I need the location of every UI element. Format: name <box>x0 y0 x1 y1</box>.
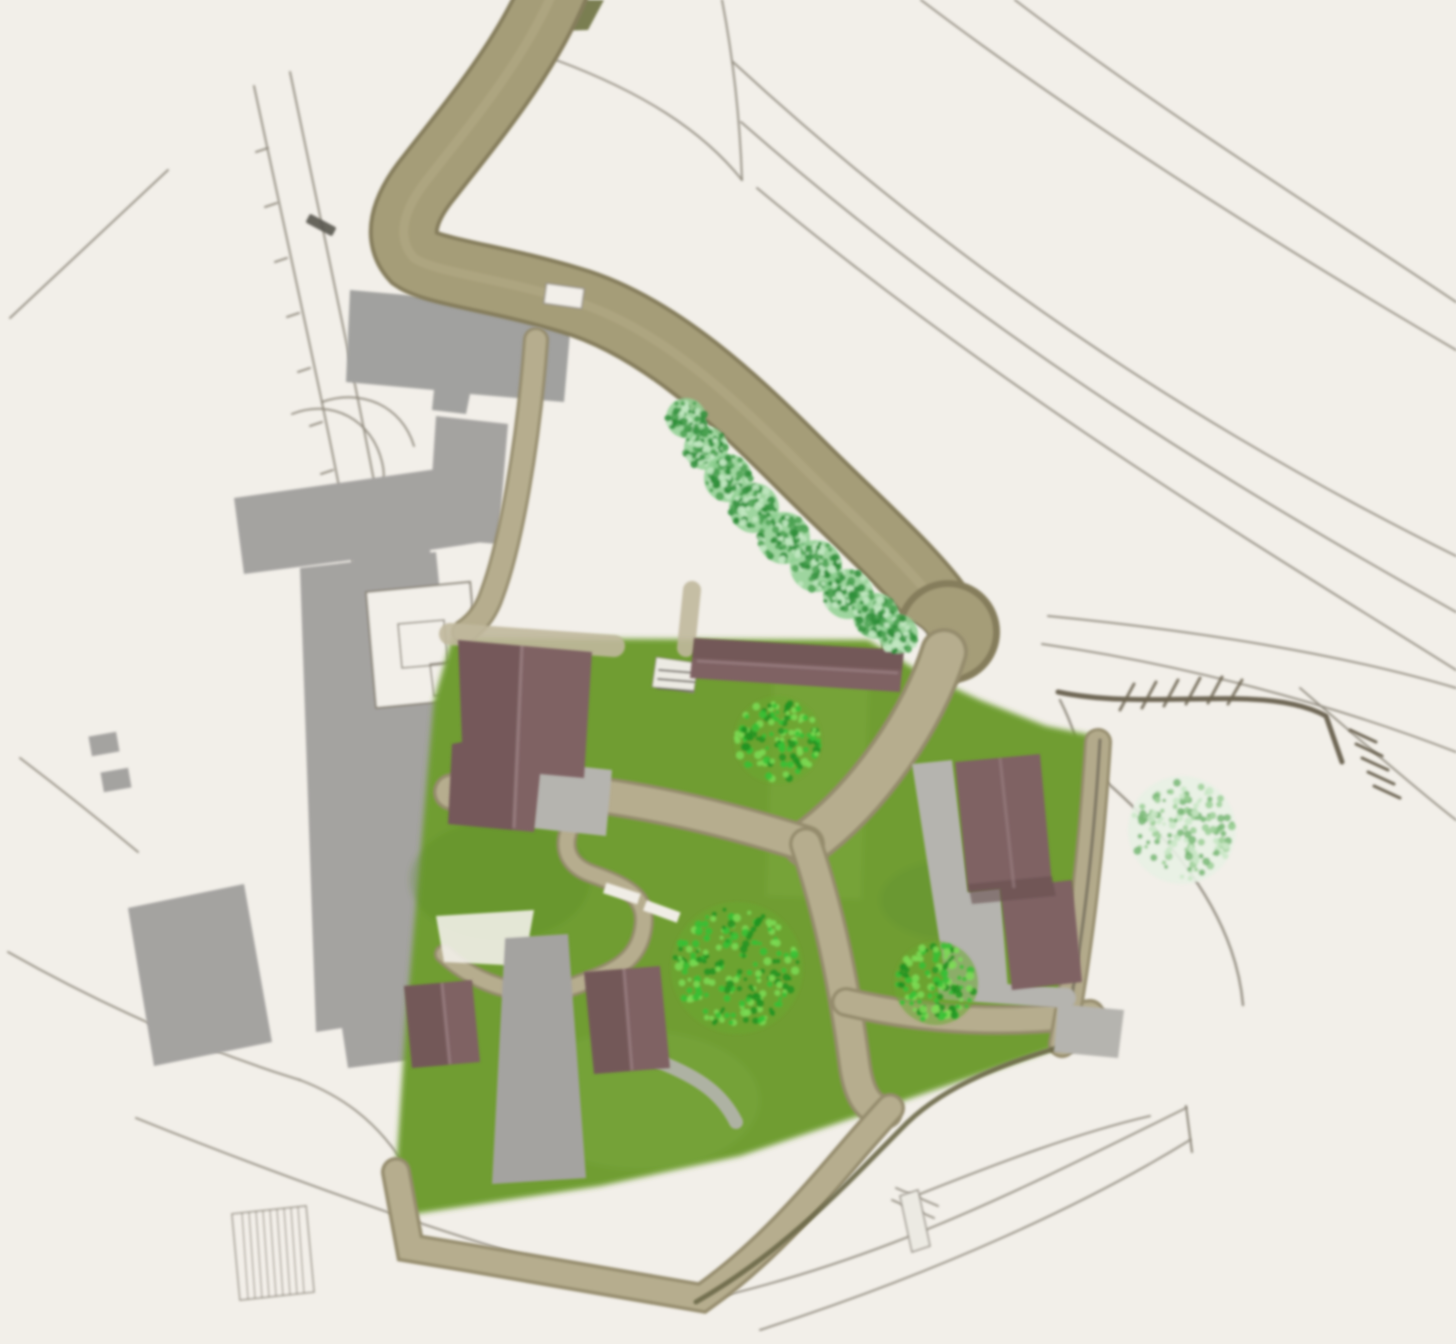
tree-foliage-dot <box>801 565 805 569</box>
tree-foliage-dot <box>792 565 799 572</box>
tree-foliage-dot <box>776 981 783 988</box>
tree-foliage-dot <box>1154 797 1160 803</box>
tree-foliage-dot <box>779 536 783 540</box>
tree-foliage-dot <box>1194 867 1198 871</box>
tree-foliage-dot <box>686 987 692 993</box>
tree-foliage-dot <box>769 975 776 982</box>
tree-foliage-dot <box>786 711 790 715</box>
tree-foliage-dot <box>774 990 780 996</box>
tree-foliage-dot <box>745 714 750 719</box>
tree-foliage-dot <box>785 702 792 709</box>
tree-foliage-dot <box>766 512 770 516</box>
tree-foliage-dot <box>681 995 688 1002</box>
tree-foliage-dot <box>904 645 912 653</box>
lawn-tree-center <box>671 902 803 1034</box>
tree-foliage-dot <box>877 611 884 618</box>
tree-foliage-dot <box>775 924 781 930</box>
tree-foliage-dot <box>894 619 900 625</box>
tree-foliage-dot <box>925 970 931 976</box>
tree-foliage-dot <box>812 566 820 574</box>
tree-foliage-dot <box>704 992 709 997</box>
tree-foliage-dot <box>803 715 809 721</box>
tree-foliage-dot <box>751 524 755 528</box>
tree-foliage-dot <box>705 915 709 919</box>
tree-foliage-dot <box>1209 826 1217 834</box>
tree-foliage-dot <box>1184 848 1188 852</box>
tree-foliage-dot <box>751 940 756 945</box>
tree-foliage-dot <box>715 966 720 971</box>
tree-foliage-dot <box>862 605 869 612</box>
tree-foliage-dot <box>1217 795 1224 802</box>
tree-foliage-dot <box>846 599 850 603</box>
tree-foliage-dot <box>1188 876 1193 881</box>
tree-foliage-dot <box>819 555 823 559</box>
tree-foliage-dot <box>747 911 751 915</box>
tree-foliage-dot <box>696 949 700 953</box>
tree-foliage-dot <box>828 565 835 572</box>
tree-foliage-dot <box>913 1008 917 1012</box>
tree-foliage-dot <box>825 543 830 548</box>
tree-foliage-dot <box>719 1017 725 1023</box>
tree-foliage-dot <box>940 969 948 977</box>
tree-foliage-dot <box>1168 789 1174 795</box>
tree-foliage-dot <box>768 719 774 725</box>
tree-foliage-dot <box>816 732 820 736</box>
tree-foliage-dot <box>927 993 932 998</box>
tree-foliage-dot <box>783 771 789 777</box>
tree-foliage-dot <box>790 518 797 525</box>
tree-foliage-dot <box>856 616 864 624</box>
tree-foliage-dot <box>966 985 973 992</box>
tree-foliage-dot <box>891 649 896 654</box>
tree-foliage-dot <box>719 461 723 465</box>
tree-foliage-dot <box>1139 810 1146 817</box>
tree-foliage-dot <box>1146 840 1150 844</box>
tree-foliage-dot <box>748 931 754 937</box>
tree-foliage-dot <box>770 759 775 764</box>
tree-foliage-dot <box>869 630 876 637</box>
tree-foliage-dot <box>884 622 889 627</box>
tree-foliage-dot <box>689 959 696 966</box>
plaza-tree-pale <box>1128 776 1236 884</box>
tree-foliage-dot <box>1206 816 1212 822</box>
tree-foliage-dot <box>1185 852 1193 860</box>
tree-foliage-dot <box>686 454 692 460</box>
tree-foliage-dot <box>784 715 790 721</box>
tree-foliage-dot <box>1180 875 1184 879</box>
tree-foliage-dot <box>776 959 781 964</box>
tree-foliage-dot <box>867 582 873 588</box>
tree-foliage-dot <box>692 940 700 948</box>
tree-foliage-dot <box>1164 865 1168 869</box>
tree-foliage-dot <box>724 454 731 461</box>
tree-foliage-dot <box>919 1005 927 1013</box>
tree-foliage-dot <box>741 743 749 751</box>
tree-foliage-dot <box>785 515 789 519</box>
tree-foliage-dot <box>704 1015 709 1020</box>
tree-foliage-dot <box>736 470 744 478</box>
tree-foliage-dot <box>1142 818 1147 823</box>
tree-foliage-dot <box>731 943 738 950</box>
tree-foliage-dot <box>795 706 801 712</box>
tree-foliage-dot <box>951 955 955 959</box>
tree-foliage-dot <box>766 503 774 511</box>
tree-foliage-dot <box>743 977 747 981</box>
tree-foliage-dot <box>719 441 723 445</box>
tree-foliage-dot <box>890 633 894 637</box>
tree-foliage-dot <box>1199 869 1206 876</box>
tree-foliage-dot <box>741 726 748 733</box>
tree-foliage-dot <box>800 524 804 528</box>
tree-foliage-dot <box>1198 784 1205 791</box>
tree-foliage-dot <box>1173 818 1177 822</box>
tree-foliage-dot <box>919 962 926 969</box>
tree-foliage-dot <box>860 601 864 605</box>
tree-foliage-dot <box>716 492 724 500</box>
tree-foliage-dot <box>694 441 700 447</box>
tree-foliage-dot <box>757 978 762 983</box>
tree-foliage-dot <box>1205 790 1210 795</box>
tree-foliage-dot <box>1224 814 1231 821</box>
tree-foliage-dot <box>831 602 836 607</box>
tree-foliage-dot <box>967 998 972 1003</box>
tree-foliage-dot <box>811 731 816 736</box>
tree-foliage-dot <box>854 570 861 577</box>
tree-foliage-dot <box>769 732 774 737</box>
tree-foliage-dot <box>696 956 703 963</box>
tree-foliage-dot <box>709 1016 714 1021</box>
tree-foliage-dot <box>1213 850 1220 857</box>
tree-foliage-dot <box>1173 779 1181 787</box>
tree-foliage-dot <box>673 955 679 961</box>
tree-foliage-dot <box>743 738 747 742</box>
tree-foliage-dot <box>909 1001 914 1006</box>
tree-foliage-dot <box>1177 829 1184 836</box>
tree-foliage-dot <box>778 728 785 735</box>
tree-foliage-dot <box>759 710 767 718</box>
tree-foliage-dot <box>916 951 921 956</box>
tree-foliage-dot <box>784 956 791 963</box>
tree-foliage-dot <box>756 917 763 924</box>
tree-foliage-dot <box>887 598 894 605</box>
tree-foliage-dot <box>753 703 761 711</box>
tree-foliage-dot <box>911 635 916 640</box>
tree-foliage-dot <box>760 948 768 956</box>
tree-foliage-dot <box>705 928 712 935</box>
tree-foliage-dot <box>767 981 773 987</box>
tree-foliage-dot <box>795 960 799 964</box>
tree-foliage-dot <box>737 969 743 975</box>
tree-foliage-dot <box>822 561 828 567</box>
tree-foliage-dot <box>731 1013 736 1018</box>
tree-foliage-dot <box>758 942 762 946</box>
tree-foliage-dot <box>679 960 684 965</box>
tree-foliage-dot <box>744 761 751 768</box>
tree-foliage-dot <box>719 433 724 438</box>
tree-foliage-dot <box>733 914 741 922</box>
tree-foliage-dot <box>790 950 798 958</box>
tree-foliage-dot <box>869 608 875 614</box>
tree-foliage-dot <box>1205 801 1213 809</box>
tree-foliage-dot <box>951 1011 958 1018</box>
tree-foliage-dot <box>713 438 718 443</box>
tree-foliage-dot <box>841 586 845 590</box>
tree-foliage-dot <box>912 982 920 990</box>
tree-foliage-dot <box>942 963 948 969</box>
tree-foliage-dot <box>679 411 685 417</box>
tree-foliage-dot <box>762 487 769 494</box>
tree-foliage-dot <box>877 596 885 604</box>
tree-foliage-dot <box>1193 803 1199 809</box>
tree-foliage-dot <box>737 986 743 992</box>
tree-foliage-dot <box>955 1004 960 1009</box>
tree-foliage-dot <box>908 994 914 1000</box>
tree-foliage-dot <box>747 475 754 482</box>
tree-foliage-dot <box>1160 809 1165 814</box>
site-plan-drawing <box>0 0 1456 1344</box>
tree-foliage-dot <box>778 997 782 1001</box>
tree-foliage-dot <box>750 1007 757 1014</box>
tree-foliage-dot <box>752 724 760 732</box>
tree-foliage-dot <box>941 943 947 949</box>
tree-foliage-dot <box>965 1004 969 1008</box>
tree-foliage-dot <box>812 728 816 732</box>
tree-foliage-dot <box>858 610 862 614</box>
tree-foliage-dot <box>678 947 683 952</box>
tree-foliage-dot <box>767 703 772 708</box>
tree-foliage-dot <box>918 944 925 951</box>
tree-foliage-dot <box>949 961 957 969</box>
tree-foliage-dot <box>709 441 715 447</box>
tree-foliage-dot <box>772 526 779 533</box>
tree-foliage-dot <box>731 455 735 459</box>
tree-foliage-dot <box>719 986 725 992</box>
tree-foliage-dot <box>704 426 710 432</box>
tree-foliage-dot <box>747 499 755 507</box>
tree-foliage-dot <box>706 459 710 463</box>
tree-foliage-dot <box>931 986 935 990</box>
tree-foliage-dot <box>789 528 797 536</box>
tree-foliage-dot <box>727 920 735 928</box>
tree-foliage-dot <box>703 935 710 942</box>
tree-foliage-dot <box>933 946 939 952</box>
tree-foliage-dot <box>1191 809 1199 817</box>
tree-foliage-dot <box>758 1018 762 1022</box>
tree-foliage-dot <box>709 488 713 492</box>
tree-foliage-dot <box>1202 858 1210 866</box>
tree-foliage-dot <box>901 637 907 643</box>
tree-foliage-dot <box>1223 843 1230 850</box>
tree-foliage-dot <box>791 967 799 975</box>
tree-foliage-dot <box>1193 858 1199 864</box>
tree-foliage-dot <box>789 730 795 736</box>
tree-foliage-dot <box>718 474 724 480</box>
tree-foliage-dot <box>803 747 809 753</box>
lawn-tree-north <box>734 696 822 784</box>
tree-foliage-dot <box>934 992 938 996</box>
tree-foliage-dot <box>704 968 711 975</box>
tree-foliage-dot <box>1216 801 1222 807</box>
tree-foliage-dot <box>917 1000 922 1005</box>
tree-foliage-dot <box>840 606 845 611</box>
tree-foliage-dot <box>949 990 953 994</box>
tree-foliage-dot <box>722 908 726 912</box>
tree-foliage-dot <box>787 976 791 980</box>
tree-foliage-dot <box>695 921 703 929</box>
tree-foliage-dot <box>1139 804 1145 810</box>
tree-foliage-dot <box>828 548 832 552</box>
tree-foliage-dot <box>1199 798 1203 802</box>
tree-foliage-dot <box>722 444 729 451</box>
tree-foliage-dot <box>1202 824 1210 832</box>
tree-foliage-dot <box>779 547 783 551</box>
tree-foliage-dot <box>743 1017 749 1023</box>
tree-foliage-dot <box>1222 853 1228 859</box>
tree-foliage-dot <box>767 924 771 928</box>
tree-foliage-dot <box>796 538 800 542</box>
tree-foliage-dot <box>823 599 827 603</box>
tree-foliage-dot <box>864 620 872 628</box>
tree-foliage-dot <box>939 1004 945 1010</box>
tree-foliage-dot <box>816 738 821 743</box>
tree-foliage-dot <box>781 968 786 973</box>
tree-foliage-dot <box>911 955 917 961</box>
tree-foliage-dot <box>836 591 843 598</box>
tree-foliage-dot <box>726 465 731 470</box>
tree-foliage-dot <box>881 631 887 637</box>
tree-foliage-dot <box>1218 823 1225 830</box>
tree-foliage-dot <box>695 408 701 414</box>
tree-foliage-dot <box>703 950 709 956</box>
tree-foliage-dot <box>781 515 786 520</box>
tree-foliage-dot <box>1144 845 1148 849</box>
tree-foliage-dot <box>860 576 866 582</box>
tree-foliage-dot <box>672 419 678 425</box>
tree-foliage-dot <box>837 600 842 605</box>
tree-foliage-dot <box>820 572 825 577</box>
tree-foliage-dot <box>1147 814 1155 822</box>
tree-foliage-dot <box>847 577 855 585</box>
tree-foliage-dot <box>809 717 815 723</box>
tree-foliage-dot <box>759 545 765 551</box>
tree-foliage-dot <box>779 754 786 761</box>
tree-foliage-dot <box>764 957 772 965</box>
tree-foliage-dot <box>798 719 802 723</box>
tree-foliage-dot <box>785 533 789 537</box>
tree-foliage-dot <box>932 966 939 973</box>
tree-foliage-dot <box>770 712 775 717</box>
tree-foliage-dot <box>688 410 692 414</box>
tree-foliage-dot <box>805 564 811 570</box>
tree-foliage-dot <box>1170 840 1178 848</box>
tree-foliage-dot <box>693 981 700 988</box>
tree-foliage-dot <box>678 956 682 960</box>
tree-foliage-dot <box>806 733 811 738</box>
tree-foliage-dot <box>925 948 929 952</box>
tree-foliage-dot <box>1156 819 1161 824</box>
tree-foliage-dot <box>732 509 737 514</box>
tree-foliage-dot <box>1138 834 1143 839</box>
tree-foliage-dot <box>787 761 794 768</box>
tree-foliage-dot <box>899 615 906 622</box>
tree-foliage-dot <box>1177 808 1185 816</box>
tree-foliage-dot <box>837 560 841 564</box>
tree-foliage-dot <box>942 976 949 983</box>
tree-foliage-dot <box>703 445 711 453</box>
tree-foliage-dot <box>958 957 962 961</box>
tree-foliage-dot <box>934 998 939 1003</box>
tree-foliage-dot <box>960 965 964 969</box>
tree-foliage-dot <box>814 752 819 757</box>
tree-foliage-dot <box>784 729 788 733</box>
tree-foliage-dot <box>772 704 777 709</box>
tree-foliage-dot <box>771 519 775 523</box>
tree-foliage-dot <box>682 969 688 975</box>
tree-foliage-dot <box>765 519 771 525</box>
tree-foliage-dot <box>756 999 764 1007</box>
tree-foliage-dot <box>747 472 752 477</box>
tree-foliage-dot <box>1184 795 1191 802</box>
tree-foliage-dot <box>797 749 803 755</box>
tree-foliage-dot <box>860 625 864 629</box>
tree-foliage-dot <box>1198 839 1205 846</box>
tree-foliage-dot <box>665 415 672 422</box>
tree-foliage-dot <box>828 581 833 586</box>
tree-foliage-dot <box>954 947 960 953</box>
tree-foliage-dot <box>742 940 750 948</box>
tree-foliage-dot <box>901 965 906 970</box>
site-plan-page <box>0 0 1456 1344</box>
tree-foliage-dot <box>734 517 740 523</box>
tree-foliage-dot <box>730 932 738 940</box>
tree-foliage-dot <box>686 946 693 953</box>
tree-foliage-dot <box>734 737 740 743</box>
tree-foliage-dot <box>688 978 692 982</box>
annotations <box>232 1206 314 1300</box>
tree-foliage-dot <box>799 534 803 538</box>
tree-foliage-dot <box>704 978 711 985</box>
tree-foliage-dot <box>771 1012 775 1016</box>
tree-foliage-dot <box>1150 854 1157 861</box>
tree-foliage-dot <box>765 772 773 780</box>
tree-foliage-dot <box>690 461 698 469</box>
tree-foliage-dot <box>899 971 903 975</box>
tree-foliage-dot <box>705 481 709 485</box>
tree-foliage-dot <box>690 952 696 958</box>
tree-foliage-dot <box>1217 815 1225 823</box>
tree-foliage-dot <box>782 992 787 997</box>
tree-foliage-dot <box>776 972 781 977</box>
tree-foliage-dot <box>778 720 783 725</box>
tree-foliage-dot <box>1169 817 1174 822</box>
tree-foliage-dot <box>702 921 709 928</box>
tree-foliage-dot <box>839 574 845 580</box>
tree-foliage-dot <box>959 985 963 989</box>
tree-foliage-dot <box>805 559 811 565</box>
tree-foliage-dot <box>736 751 744 759</box>
tree-foliage-dot <box>775 710 779 714</box>
tree-foliage-dot <box>768 927 772 931</box>
tree-foliage-dot <box>777 740 781 744</box>
tree-foliage-dot <box>1184 817 1192 825</box>
tree-foliage-dot <box>729 481 733 485</box>
tree-foliage-dot <box>739 1000 746 1007</box>
tree-foliage-dot <box>762 734 766 738</box>
tree-foliage-dot <box>935 982 939 986</box>
tree-foliage-dot <box>931 1006 939 1014</box>
tree-foliage-dot <box>740 507 744 511</box>
tree-foliage-dot <box>692 401 696 405</box>
